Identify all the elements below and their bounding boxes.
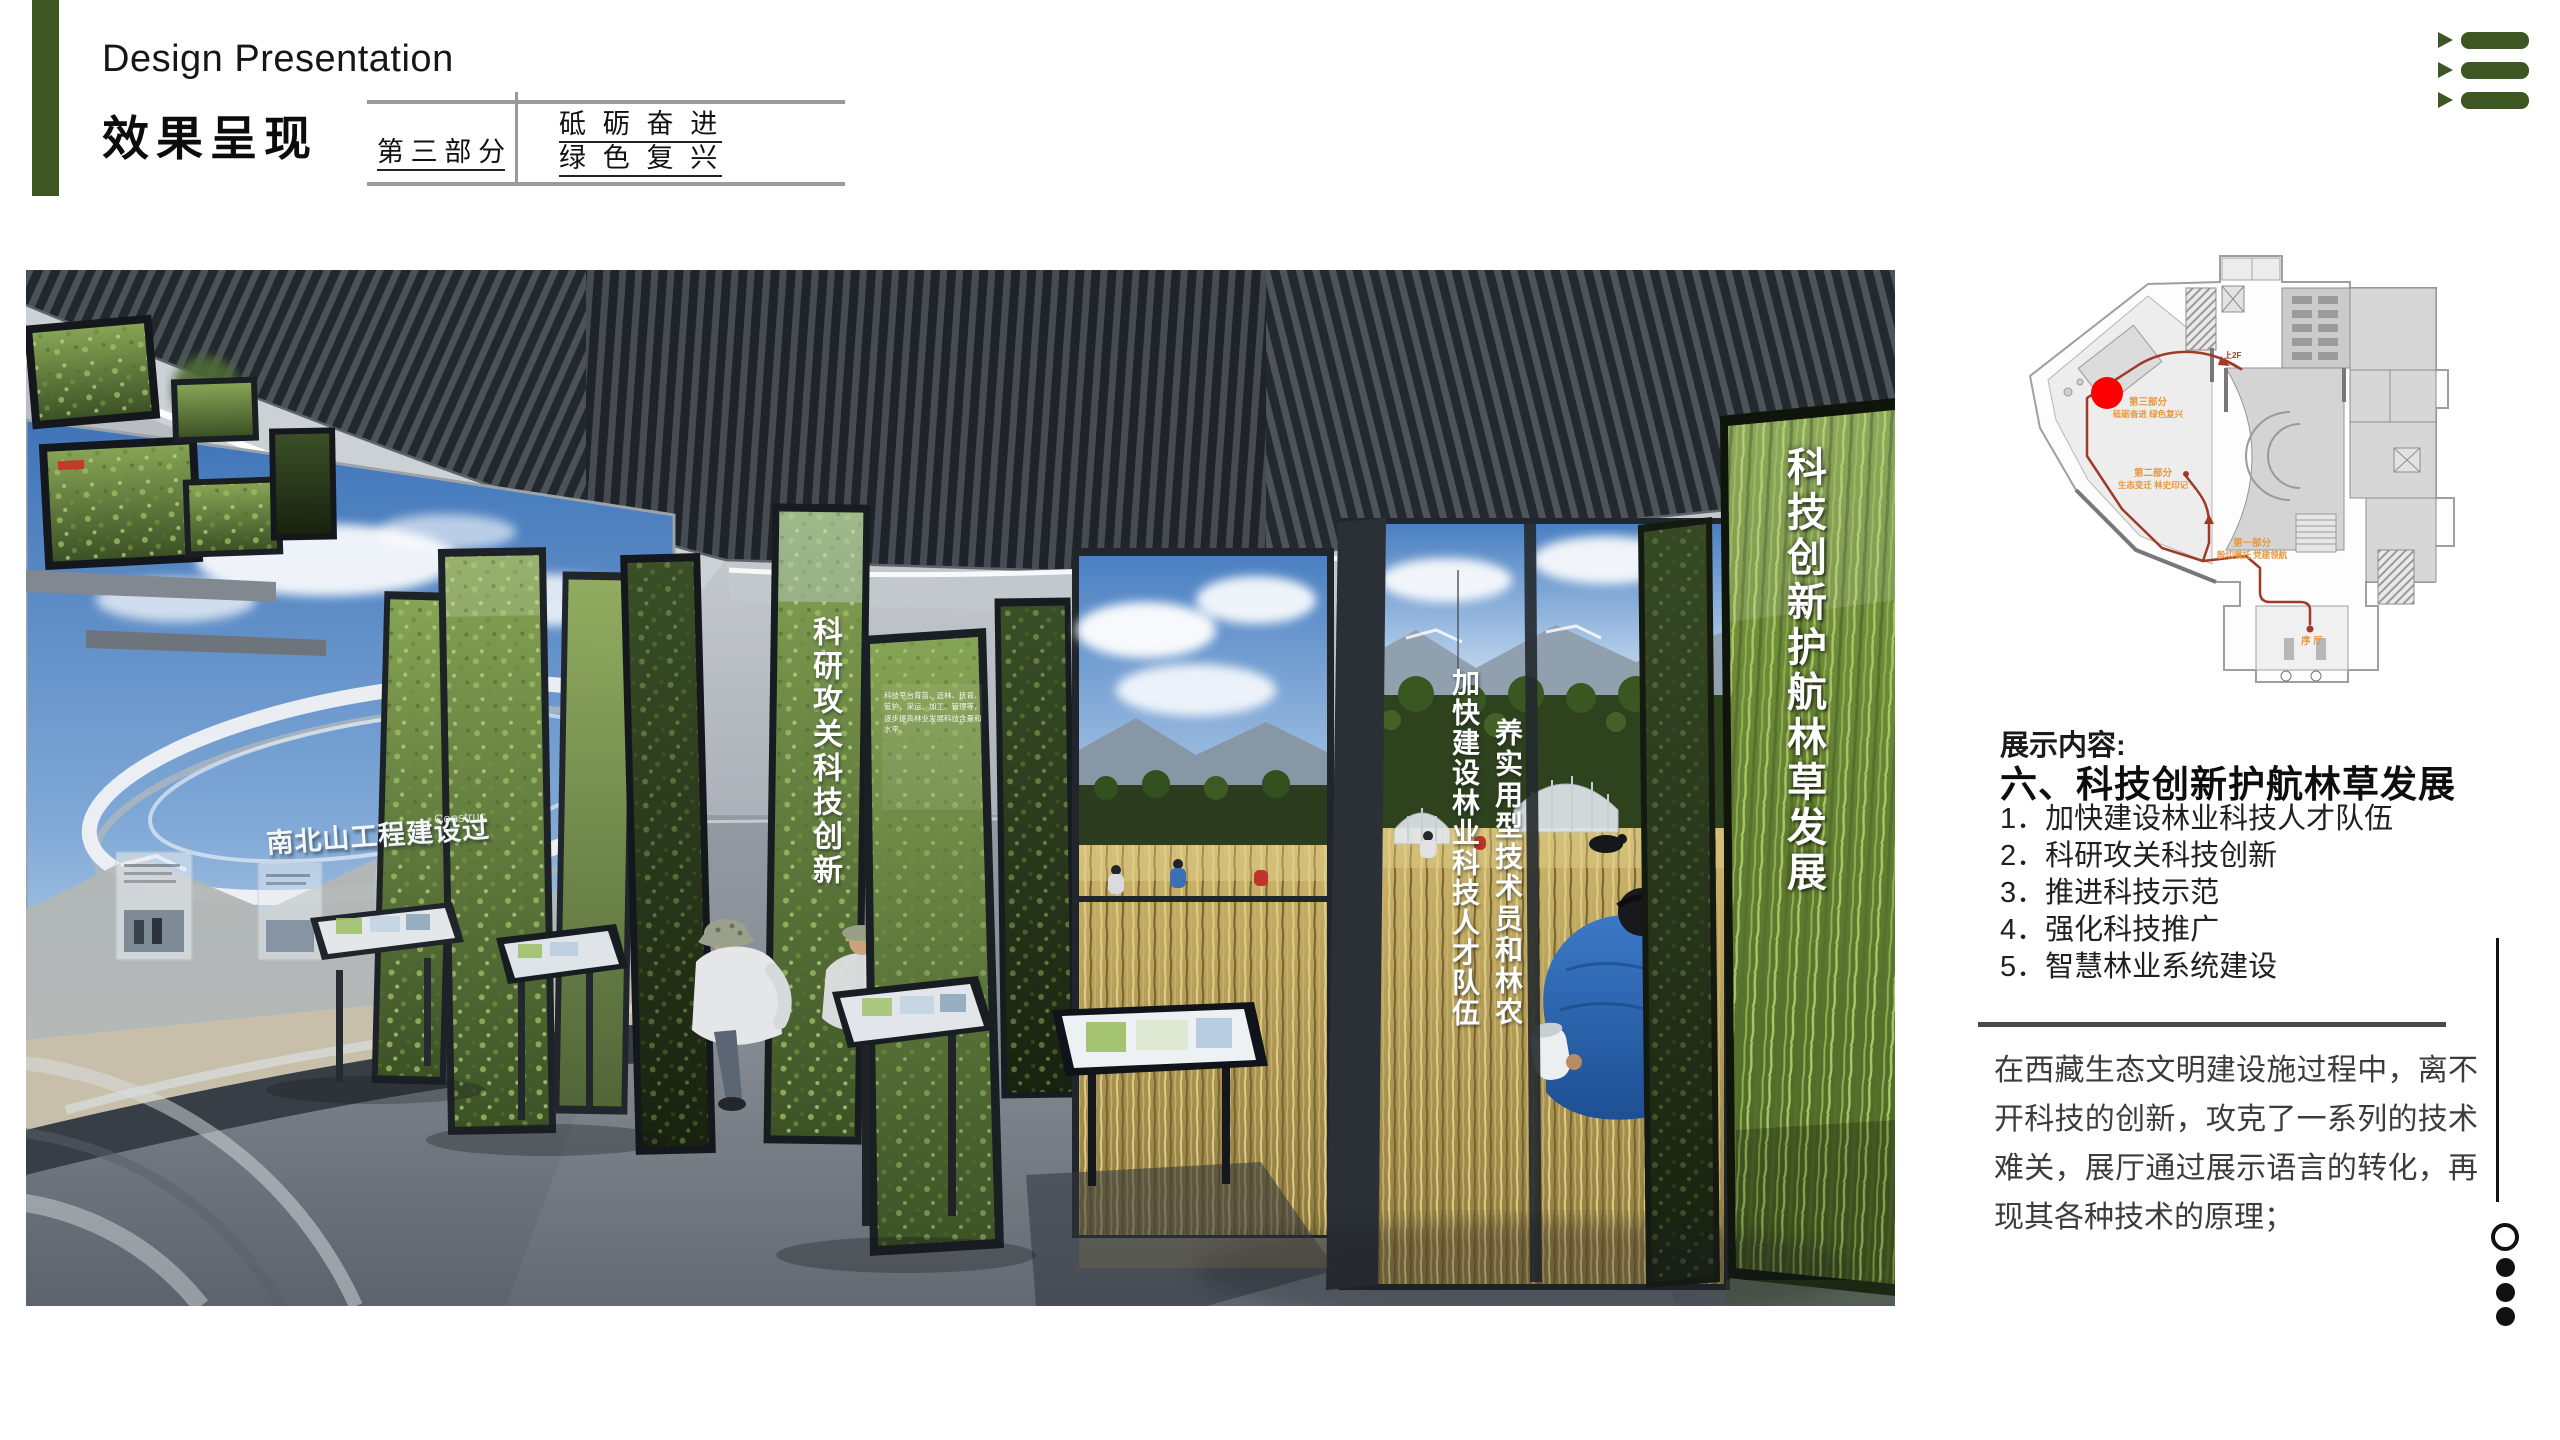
section-title: 六、科技创新护航林草发展	[2000, 754, 2456, 808]
page-title-zh: 效果呈现	[102, 100, 318, 169]
stamp-part-label: 第 三 部 分	[367, 130, 515, 169]
plan-label-part3: 第三部分	[2129, 396, 2168, 408]
section-stamp: 第 三 部 分 砥 砺 奋 进 绿 色 复 兴	[367, 100, 845, 186]
pagination-dot-active[interactable]	[2491, 1223, 2519, 1251]
plan-label-upstairs: 上2F	[2224, 350, 2241, 360]
content-item: 2．科研攻关科技创新	[2000, 838, 2393, 875]
content-item: 1．加快建设林业科技人才队伍	[2000, 801, 2393, 838]
plan-label-part1-sub: 殷切嘱托 党建领航	[2216, 550, 2288, 560]
stamp-divider	[515, 92, 518, 182]
dark-plant-panel	[1638, 517, 1720, 1288]
section-divider	[1978, 1022, 2446, 1027]
pagination-dot[interactable]	[2496, 1258, 2515, 1277]
plan-label-part2-sub: 生态变迁 林史印记	[2118, 480, 2189, 490]
content-item-list: 1．加快建设林业科技人才队伍 2．科研攻关科技创新 3．推进科技示范 4．强化科…	[2000, 801, 2393, 986]
exhibition-render: 科研攻关科技创新 加快建设林业科技人才队伍 养实用型技术员和林农 科技创新护航林…	[26, 270, 1895, 1306]
banner-yang-text: 养实用型技术员和林农	[1487, 718, 1527, 1028]
plan-label-part2: 第二部分	[2134, 467, 2173, 479]
panel-note-text: 科技平台育苗、造林、抚育、管护、采运、加工、管理等，逐步提高林业发展科技含量和水…	[884, 690, 984, 735]
content-item: 5．智慧林业系统建设	[2000, 949, 2393, 986]
stamp-slogans: 砥 砺 奋 进 绿 色 复 兴	[559, 107, 722, 175]
pagination-dot[interactable]	[2496, 1283, 2515, 1302]
banner-keyan-text: 科研攻关科技创新	[802, 616, 846, 888]
list-menu-icon[interactable]	[2436, 28, 2536, 118]
content-item: 3．推进科技示范	[2000, 875, 2393, 912]
pagination-dot[interactable]	[2496, 1307, 2515, 1326]
stamp-slogan-line1: 砥 砺 奋 进	[559, 107, 722, 141]
plan-label-part1: 第一部分	[2233, 537, 2272, 549]
vertical-rule	[2496, 938, 2499, 1202]
banner-jiakuai-text: 加快建设林业科技人才队伍	[1444, 668, 1484, 1028]
location-marker-dot	[2091, 377, 2123, 409]
content-item: 4．强化科技推广	[2000, 912, 2393, 949]
floor-plan: 第三部分 砥砺奋进 绿色复兴 第二部分 生态变迁 林史印记 第一部分 殷切嘱托 …	[1990, 252, 2472, 692]
plan-label-lobby: 序 厅	[2301, 635, 2323, 647]
stamp-slogan-line2: 绿 色 复 兴	[559, 141, 722, 175]
plan-label-part3-sub: 砥砺奋进 绿色复兴	[2113, 409, 2184, 419]
accent-bar	[32, 0, 59, 196]
page-title-en: Design Presentation	[102, 38, 454, 81]
description-paragraph: 在西藏生态文明建设施过程中，离不开科技的创新，攻克了一系列的技术难关，展厅通过展…	[1994, 1046, 2478, 1242]
plant-panels-left	[372, 547, 716, 1155]
banner-right-text: 科技创新护航林草发展	[1774, 446, 1832, 896]
